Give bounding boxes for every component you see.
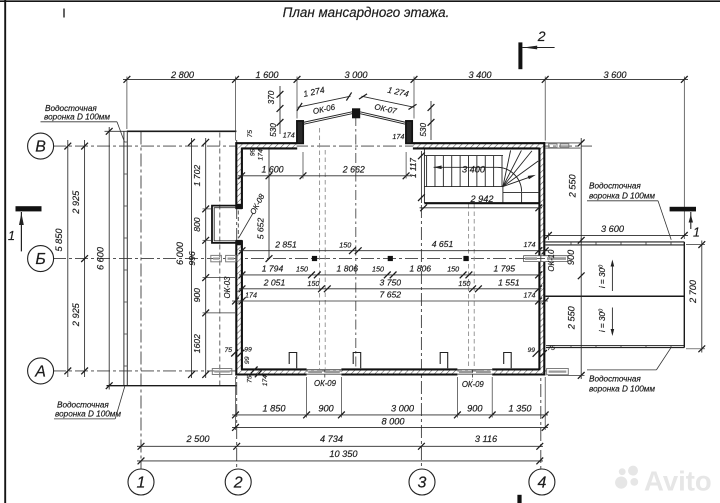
svg-text:2 800: 2 800: [170, 70, 195, 80]
svg-text:3 600: 3 600: [601, 224, 625, 234]
svg-text:1: 1: [8, 228, 15, 243]
svg-text:150: 150: [372, 265, 384, 274]
svg-text:2 851: 2 851: [274, 239, 297, 249]
svg-text:3 600: 3 600: [604, 70, 628, 80]
svg-text:370: 370: [267, 90, 276, 104]
svg-text:5 850: 5 850: [54, 228, 64, 252]
svg-text:150: 150: [307, 279, 319, 288]
svg-text:3: 3: [418, 475, 427, 492]
svg-text:3 000: 3 000: [391, 404, 415, 414]
svg-text:1 794: 1 794: [262, 264, 284, 274]
svg-text:Б: Б: [35, 251, 45, 268]
svg-text:5 652: 5 652: [255, 218, 265, 240]
svg-text:воронка D 100мм: воронка D 100мм: [589, 385, 655, 394]
svg-text:1 806: 1 806: [410, 264, 432, 274]
svg-text:воронка D 100мм: воронка D 100мм: [55, 409, 121, 418]
svg-text:150: 150: [447, 265, 459, 274]
svg-text:2 925: 2 925: [71, 190, 81, 215]
svg-text:2 942: 2 942: [470, 194, 494, 204]
svg-text:2 700: 2 700: [688, 279, 698, 304]
svg-text:воронка D 100мм: воронка D 100мм: [589, 192, 655, 201]
svg-text:900: 900: [318, 404, 334, 414]
svg-text:Водосточная: Водосточная: [589, 182, 641, 191]
svg-text:99: 99: [249, 148, 256, 156]
svg-text:4: 4: [537, 475, 546, 492]
svg-text:3 116: 3 116: [475, 434, 498, 444]
svg-text:2 925: 2 925: [71, 302, 81, 327]
svg-text:2 051: 2 051: [263, 278, 286, 288]
svg-text:ОК-03: ОК-03: [223, 276, 232, 299]
svg-text:150: 150: [296, 265, 308, 274]
svg-text:3 750: 3 750: [380, 278, 402, 288]
svg-text:Водосточная: Водосточная: [57, 401, 109, 410]
svg-text:900: 900: [467, 404, 483, 414]
svg-text:75: 75: [247, 130, 254, 138]
svg-text:3 000: 3 000: [345, 70, 369, 80]
svg-text:75: 75: [225, 347, 233, 354]
svg-text:ОК-10: ОК-10: [547, 249, 556, 272]
svg-text:900: 900: [192, 288, 202, 303]
svg-text:99: 99: [244, 347, 252, 354]
svg-text:174: 174: [245, 291, 257, 300]
svg-text:3 400: 3 400: [469, 70, 493, 80]
svg-text:В: В: [35, 139, 46, 156]
svg-text:1602: 1602: [192, 334, 202, 353]
svg-text:8 000: 8 000: [382, 416, 406, 426]
svg-text:150: 150: [458, 279, 470, 288]
svg-text:1 702: 1 702: [192, 165, 202, 187]
svg-text:6 600: 6 600: [95, 246, 105, 270]
svg-text:1 850: 1 850: [263, 404, 287, 414]
svg-text:1 806: 1 806: [337, 264, 359, 274]
svg-text:174: 174: [392, 132, 404, 141]
svg-text:4 734: 4 734: [320, 434, 343, 444]
svg-text:800: 800: [192, 217, 202, 232]
svg-text:А: А: [34, 364, 46, 381]
svg-text:3 400: 3 400: [462, 164, 486, 174]
svg-text:2 550: 2 550: [567, 305, 577, 330]
svg-text:2: 2: [537, 28, 546, 44]
svg-text:Avito: Avito: [644, 466, 712, 497]
svg-text:174: 174: [524, 240, 536, 249]
svg-text:174: 174: [524, 291, 536, 300]
svg-text:10 350: 10 350: [329, 449, 358, 459]
svg-text:174: 174: [283, 131, 295, 140]
svg-text:996: 996: [187, 251, 197, 266]
svg-text:воронка D 100мм: воронка D 100мм: [44, 113, 110, 122]
svg-text:75: 75: [547, 345, 555, 352]
svg-text:900: 900: [566, 249, 576, 265]
svg-text:150: 150: [339, 240, 351, 249]
svg-text:1 551: 1 551: [498, 278, 520, 288]
svg-text:2 662: 2 662: [342, 165, 365, 175]
svg-text:4 651: 4 651: [432, 239, 454, 249]
svg-text:1 795: 1 795: [494, 264, 516, 274]
svg-text:Водосточная: Водосточная: [589, 374, 641, 383]
svg-text:2 550: 2 550: [567, 174, 577, 199]
svg-text:530: 530: [419, 123, 428, 137]
svg-text:1: 1: [693, 226, 700, 240]
svg-text:75: 75: [247, 375, 254, 383]
svg-text:6 000: 6 000: [175, 241, 185, 265]
svg-text:1 600: 1 600: [256, 70, 280, 80]
svg-text:174: 174: [262, 375, 269, 387]
svg-text:ОК-09: ОК-09: [462, 380, 485, 389]
svg-text:1: 1: [137, 475, 146, 492]
svg-text:1 350: 1 350: [509, 404, 533, 414]
svg-text:1 117: 1 117: [409, 158, 418, 178]
svg-text:99: 99: [528, 347, 536, 354]
svg-text:2: 2: [233, 475, 243, 492]
svg-text:7 652: 7 652: [380, 290, 402, 300]
svg-text:ОК-09: ОК-09: [314, 379, 337, 388]
svg-text:174: 174: [258, 149, 265, 161]
svg-text:99: 99: [244, 356, 251, 364]
svg-text:План мансардного этажа.: План мансардного этажа.: [283, 5, 450, 20]
svg-text:530: 530: [269, 123, 278, 137]
svg-text:2 500: 2 500: [186, 434, 211, 444]
